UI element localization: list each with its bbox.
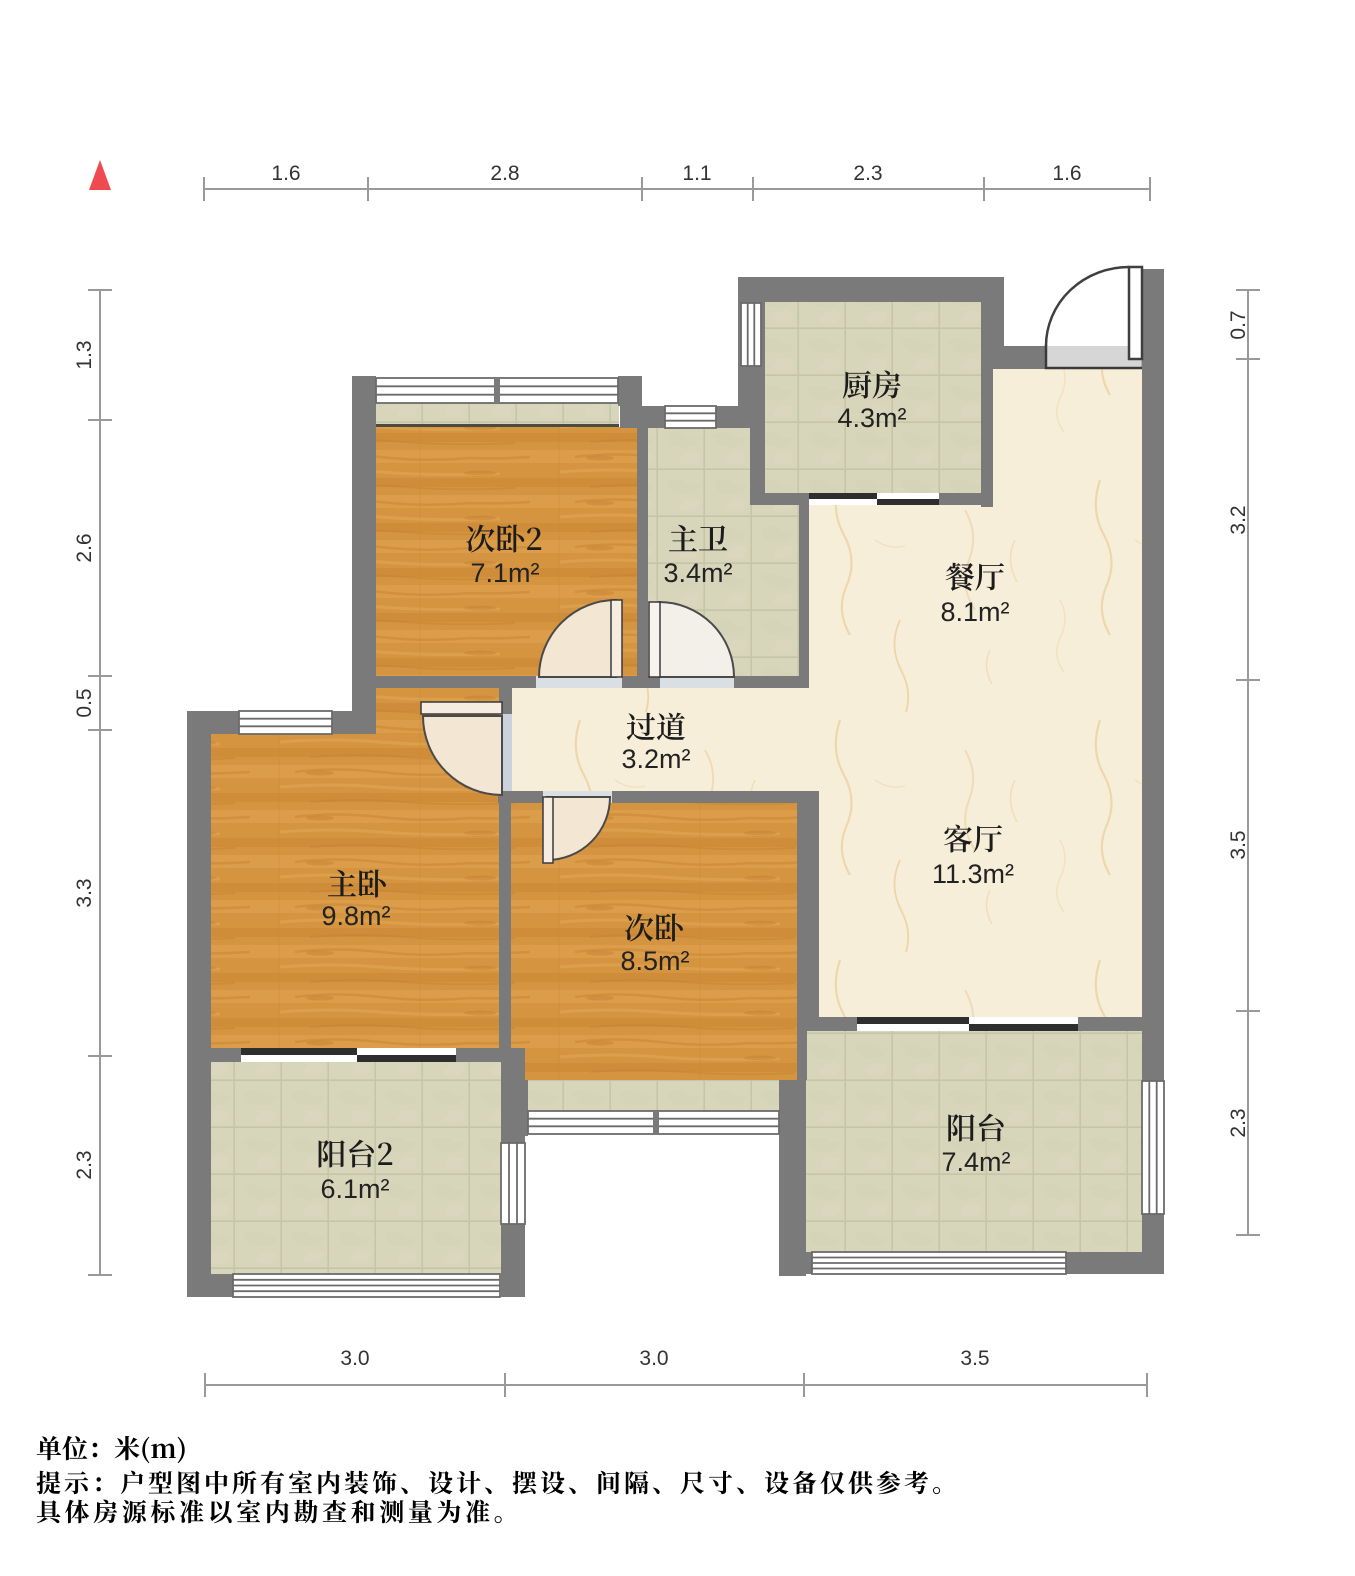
svg-text:3.4m²: 3.4m² bbox=[663, 558, 732, 588]
svg-text:3.0: 3.0 bbox=[340, 1347, 369, 1370]
svg-text:1.3: 1.3 bbox=[73, 340, 96, 369]
svg-text:3.3: 3.3 bbox=[73, 878, 96, 907]
svg-text:2.3: 2.3 bbox=[73, 1150, 96, 1179]
svg-text:4.3m²: 4.3m² bbox=[837, 403, 906, 433]
svg-text:7.4m²: 7.4m² bbox=[941, 1147, 1010, 1177]
svg-text:6.1m²: 6.1m² bbox=[320, 1174, 389, 1204]
svg-text:9.8m²: 9.8m² bbox=[321, 901, 390, 931]
svg-text:1.6: 1.6 bbox=[271, 162, 300, 185]
svg-text:1.6: 1.6 bbox=[1052, 162, 1081, 185]
svg-text:1.1: 1.1 bbox=[682, 162, 711, 185]
svg-text:0.5: 0.5 bbox=[73, 688, 96, 717]
svg-text:3.5: 3.5 bbox=[960, 1347, 989, 1370]
svg-text:3.2m²: 3.2m² bbox=[621, 744, 690, 774]
svg-text:2.3: 2.3 bbox=[1227, 1108, 1250, 1137]
svg-text:8.5m²: 8.5m² bbox=[620, 946, 689, 976]
svg-text:8.1m²: 8.1m² bbox=[940, 597, 1009, 627]
svg-text:3.2: 3.2 bbox=[1227, 505, 1250, 534]
svg-text:0.7: 0.7 bbox=[1227, 310, 1250, 339]
svg-text:7.1m²: 7.1m² bbox=[470, 558, 539, 588]
svg-text:2.3: 2.3 bbox=[853, 162, 882, 185]
svg-text:3.5: 3.5 bbox=[1227, 830, 1250, 859]
svg-text:11.3m²: 11.3m² bbox=[932, 859, 1014, 889]
svg-text:3.0: 3.0 bbox=[639, 1347, 668, 1370]
svg-text:2.8: 2.8 bbox=[490, 162, 519, 185]
svg-text:2.6: 2.6 bbox=[73, 533, 96, 562]
